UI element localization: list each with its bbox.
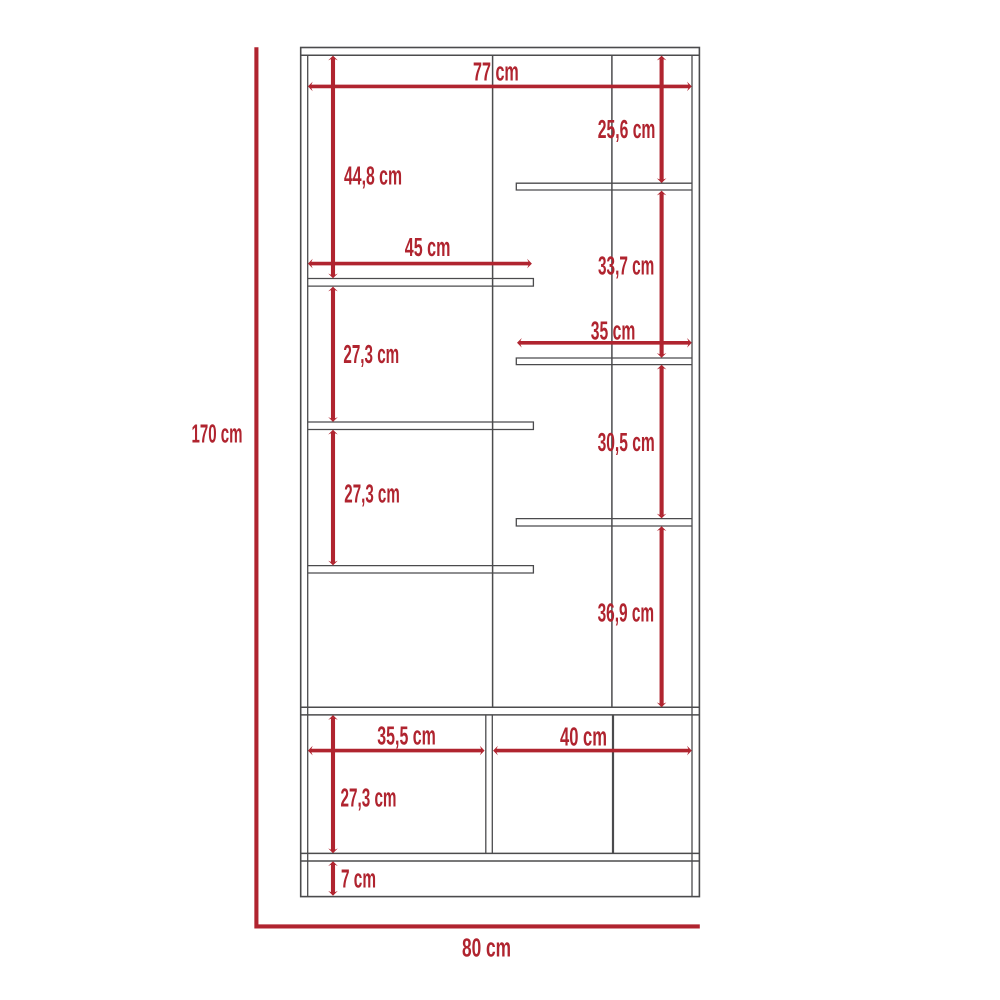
svg-text:27,3 cm: 27,3 cm [344,481,400,509]
svg-text:7 cm: 7 cm [341,865,376,893]
svg-text:80 cm: 80 cm [462,934,511,962]
svg-text:33,7 cm: 33,7 cm [598,253,654,281]
svg-text:30,5 cm: 30,5 cm [598,429,655,457]
svg-text:45 cm: 45 cm [405,234,451,262]
svg-text:36,9 cm: 36,9 cm [598,599,655,627]
svg-text:35,5 cm: 35,5 cm [377,723,436,751]
svg-text:44,8 cm: 44,8 cm [344,163,402,191]
svg-text:27,3 cm: 27,3 cm [343,341,399,369]
svg-text:25,6 cm: 25,6 cm [598,116,656,144]
svg-text:40 cm: 40 cm [560,723,607,751]
svg-text:27,3 cm: 27,3 cm [341,785,397,813]
svg-text:170 cm: 170 cm [192,421,243,449]
svg-text:77 cm: 77 cm [473,59,519,87]
svg-text:35 cm: 35 cm [591,318,636,346]
